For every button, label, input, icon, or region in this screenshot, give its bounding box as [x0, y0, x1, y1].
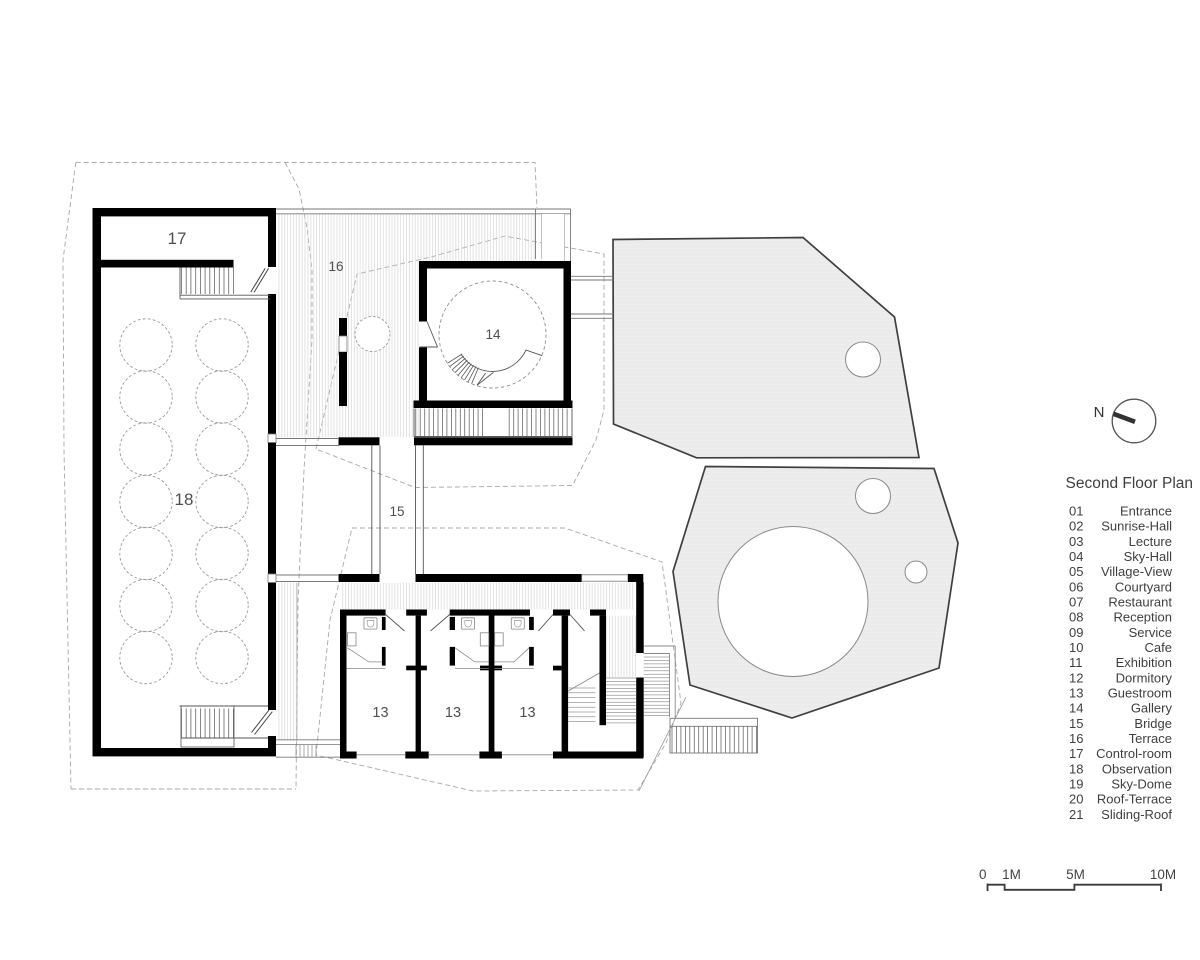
- svg-text:01: 01: [1069, 504, 1083, 519]
- svg-text:Second Floor Plan: Second Floor Plan: [1066, 475, 1194, 492]
- svg-text:17: 17: [1069, 746, 1083, 761]
- svg-text:10: 10: [1069, 640, 1083, 655]
- svg-text:09: 09: [1069, 625, 1083, 640]
- svg-text:02: 02: [1069, 519, 1083, 534]
- svg-text:16: 16: [1069, 731, 1083, 746]
- svg-text:11: 11: [1069, 655, 1083, 670]
- svg-text:03: 03: [1069, 534, 1083, 549]
- svg-text:13: 13: [1069, 686, 1083, 701]
- svg-text:05: 05: [1069, 564, 1083, 579]
- svg-text:Exhibition: Exhibition: [1116, 655, 1172, 670]
- svg-text:Sky-Dome: Sky-Dome: [1111, 777, 1172, 792]
- svg-text:06: 06: [1069, 579, 1083, 594]
- svg-text:21: 21: [1069, 807, 1083, 822]
- svg-text:20: 20: [1069, 792, 1083, 807]
- svg-text:Sunrise-Hall: Sunrise-Hall: [1101, 519, 1172, 534]
- svg-text:15: 15: [389, 504, 404, 519]
- svg-text:12: 12: [1069, 670, 1083, 685]
- svg-text:Observation: Observation: [1102, 761, 1172, 776]
- svg-text:Entrance: Entrance: [1120, 504, 1172, 519]
- svg-text:16: 16: [328, 259, 343, 274]
- svg-text:Sky-Hall: Sky-Hall: [1124, 549, 1173, 564]
- svg-text:Cafe: Cafe: [1145, 640, 1172, 655]
- svg-text:13: 13: [372, 705, 388, 721]
- svg-text:N: N: [1094, 404, 1105, 421]
- svg-text:Village-View: Village-View: [1101, 564, 1173, 579]
- svg-text:14: 14: [485, 327, 501, 342]
- svg-text:18: 18: [1069, 761, 1083, 776]
- svg-text:Gallery: Gallery: [1131, 701, 1173, 716]
- svg-text:Bridge: Bridge: [1134, 716, 1172, 731]
- svg-text:13: 13: [519, 705, 535, 721]
- svg-text:08: 08: [1069, 610, 1083, 625]
- svg-text:07: 07: [1069, 595, 1083, 610]
- svg-text:Restaurant: Restaurant: [1108, 595, 1172, 610]
- svg-text:Lecture: Lecture: [1129, 534, 1172, 549]
- svg-text:1M: 1M: [1002, 867, 1021, 882]
- svg-text:04: 04: [1069, 549, 1083, 564]
- svg-text:17: 17: [168, 229, 187, 248]
- svg-text:19: 19: [1069, 777, 1083, 792]
- svg-text:Sliding-Roof: Sliding-Roof: [1101, 807, 1172, 822]
- svg-text:13: 13: [445, 705, 461, 721]
- svg-text:Roof-Terrace: Roof-Terrace: [1097, 792, 1172, 807]
- svg-text:14: 14: [1069, 701, 1083, 716]
- svg-text:Guestroom: Guestroom: [1108, 686, 1172, 701]
- svg-text:10M: 10M: [1150, 867, 1176, 882]
- svg-text:5M: 5M: [1066, 867, 1085, 882]
- svg-text:Courtyard: Courtyard: [1115, 579, 1172, 594]
- svg-text:Reception: Reception: [1113, 610, 1172, 625]
- svg-text:15: 15: [1069, 716, 1083, 731]
- svg-text:Service: Service: [1129, 625, 1172, 640]
- svg-text:Control-room: Control-room: [1096, 746, 1172, 761]
- svg-text:0: 0: [979, 867, 987, 882]
- svg-text:18: 18: [175, 490, 194, 509]
- svg-text:Terrace: Terrace: [1129, 731, 1172, 746]
- svg-text:Dormitory: Dormitory: [1116, 670, 1173, 685]
